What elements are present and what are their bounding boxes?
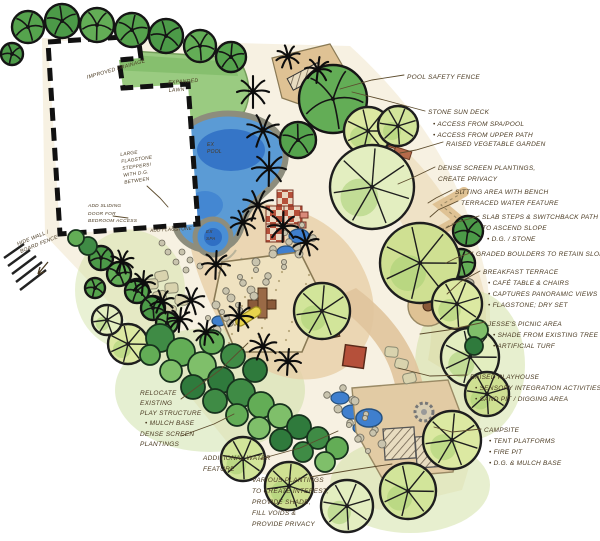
- sand-dot: [281, 271, 283, 273]
- tree-symbol: [1, 43, 23, 65]
- sand-dot: [308, 274, 310, 276]
- shrub-symbol: [270, 429, 292, 451]
- tree-symbol: [80, 8, 114, 42]
- cobble: [340, 385, 347, 392]
- shrub-symbol: [248, 417, 270, 439]
- cobble: [250, 292, 258, 300]
- sand-dot: [278, 280, 280, 282]
- tree-symbol: [423, 411, 481, 469]
- cobble: [219, 309, 224, 314]
- patio-chair: [300, 212, 308, 218]
- shrub-symbol: [160, 360, 182, 382]
- tree-symbol: [321, 480, 373, 532]
- shrub-symbol: [465, 337, 483, 355]
- tree-symbol: [280, 122, 316, 158]
- cobble: [269, 250, 277, 258]
- campsite-pond: [356, 409, 382, 427]
- tree-symbol: [465, 372, 509, 416]
- cobble: [324, 392, 331, 399]
- sand-dot: [291, 321, 293, 323]
- tree-symbol: [12, 11, 44, 43]
- cobble: [362, 415, 367, 420]
- cobble: [159, 240, 165, 246]
- cobble: [299, 222, 304, 227]
- sand-dot: [261, 327, 263, 329]
- tree-symbol: [92, 305, 122, 335]
- shrub-symbol: [181, 375, 205, 399]
- spa-deep-water: [204, 228, 222, 246]
- cobble: [378, 440, 386, 448]
- cobble: [227, 294, 235, 302]
- cobble: [265, 273, 272, 280]
- shrub-symbol: [221, 344, 245, 368]
- tree-symbol: [380, 463, 436, 519]
- cobble: [252, 258, 260, 266]
- cobble: [370, 430, 377, 437]
- site-plan-canvas: [0, 0, 600, 541]
- cobble: [263, 279, 270, 286]
- cobble: [205, 315, 210, 320]
- tree-symbol: [45, 4, 79, 38]
- stream-pond: [331, 392, 349, 404]
- tree-symbol: [184, 30, 216, 62]
- cobble: [355, 436, 362, 443]
- pool-deep-water: [197, 129, 265, 171]
- shrub-symbol: [140, 345, 160, 365]
- flagstone-stepper: [385, 346, 399, 357]
- tree-symbol: [378, 106, 418, 146]
- sand-dot: [244, 296, 246, 298]
- cobble: [281, 259, 286, 264]
- cobble: [237, 274, 242, 279]
- cobble: [253, 267, 258, 272]
- cobble: [346, 422, 351, 427]
- tree-symbol: [221, 437, 265, 481]
- shrub-symbol: [293, 442, 313, 462]
- sand-dot: [275, 289, 277, 291]
- cobble: [212, 301, 220, 309]
- sand-dot: [241, 305, 243, 307]
- cobble: [365, 448, 370, 453]
- cobble: [334, 405, 342, 413]
- playhouse-shape: [343, 345, 367, 369]
- tree-symbol: [330, 145, 414, 229]
- sand-dot: [305, 283, 307, 285]
- shrub-symbol: [226, 404, 248, 426]
- cobble: [165, 249, 171, 255]
- tree-symbol: [265, 462, 313, 510]
- shrub-symbol: [243, 358, 267, 382]
- landscape-plan-drawing: POOL SAFETY FENCESTONE SUN DECK• ACCESS …: [0, 0, 600, 541]
- sand-dot: [251, 277, 253, 279]
- tree-symbol: [85, 278, 105, 298]
- sand-dot: [234, 324, 236, 326]
- cobble: [240, 280, 247, 287]
- shrub-symbol: [315, 452, 335, 472]
- tree-symbol: [216, 42, 246, 72]
- cobble: [173, 259, 179, 265]
- tree-symbol: [453, 216, 483, 246]
- tree-symbol: [149, 19, 183, 53]
- tent-platform: [383, 427, 416, 460]
- cobble: [187, 257, 193, 263]
- shrub-symbol: [68, 230, 84, 246]
- tree-symbol: [294, 283, 350, 339]
- sand-dot: [288, 330, 290, 332]
- sand-dot: [231, 333, 233, 335]
- cobble: [281, 264, 286, 269]
- fire-pit-center: [421, 409, 427, 415]
- shrub-symbol: [203, 389, 227, 413]
- cobble: [286, 239, 293, 246]
- cobble: [351, 397, 359, 405]
- cobble: [179, 249, 185, 255]
- cobble: [223, 288, 230, 295]
- sand-dot: [285, 339, 287, 341]
- cobble: [183, 267, 189, 273]
- tree-symbol: [115, 13, 149, 47]
